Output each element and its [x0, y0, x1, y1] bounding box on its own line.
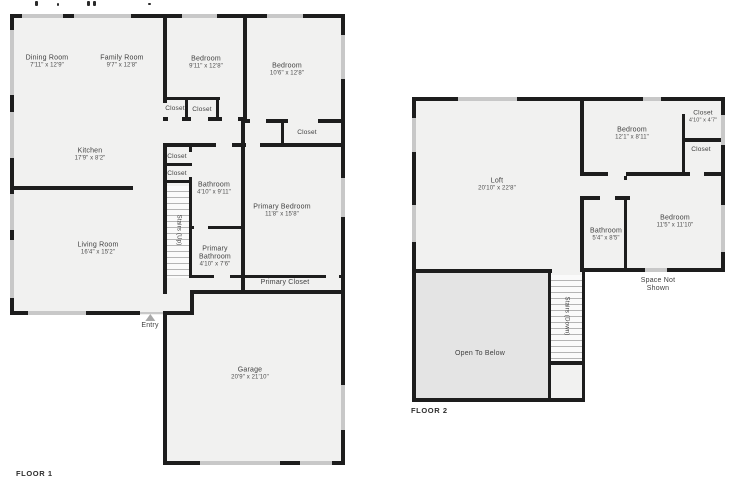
room-label-family-room: Family Room 9'7" x 12'8" [100, 55, 143, 70]
wall [548, 273, 551, 402]
door-opening [608, 172, 626, 176]
room-label-closet: Closet [167, 153, 187, 161]
door-opening [246, 143, 260, 147]
window [74, 14, 131, 18]
wall [190, 290, 194, 315]
wall [163, 14, 167, 103]
window [22, 14, 63, 18]
window [341, 35, 345, 79]
door-opening [194, 226, 208, 229]
wall [243, 14, 247, 121]
room-label-bathroom: Bathroom 4'10" x 9'11" [197, 182, 231, 197]
room-label-loft: Loft 20'10" x 22'8" [478, 178, 516, 193]
wall [580, 97, 584, 172]
window [10, 240, 14, 298]
wall [10, 186, 133, 190]
wall [582, 272, 585, 402]
room-label-closet-top: Closet 4'10" x 4'7" [689, 110, 717, 125]
window [10, 30, 14, 95]
wall [163, 163, 192, 166]
door-opening [326, 275, 339, 278]
door-opening [288, 119, 318, 123]
open-area-fill [414, 271, 548, 400]
room-label-kitchen: Kitchen 17'9" x 8'2" [75, 148, 106, 163]
door-opening [189, 152, 192, 163]
space-not-shown-label: Space Not Shown [636, 277, 680, 293]
open-to-below-label: Open To Below [455, 350, 505, 358]
floor2-label: FLOOR 2 [411, 406, 448, 415]
room-label-bedroom-left: Bedroom 9'11" x 12'8" [189, 56, 223, 71]
window [10, 112, 14, 158]
window [28, 311, 86, 315]
floor1-label: FLOOR 1 [16, 469, 53, 478]
room-label-closet: Closet [192, 106, 212, 114]
door-opening [222, 117, 238, 121]
entry-arrow-icon [145, 314, 155, 321]
window [721, 205, 725, 252]
wall [281, 122, 284, 143]
window [341, 385, 345, 430]
window [643, 97, 661, 101]
wall [551, 361, 582, 365]
window [721, 115, 725, 145]
room-label-closet: Closet [297, 129, 317, 137]
room-label-primary-bedroom: Primary Bedroom 11'8" x 15'8" [253, 204, 310, 219]
wall [163, 97, 220, 100]
wall [163, 180, 192, 183]
window [267, 14, 303, 18]
room-label-living-room: Living Room 16'4" x 15'2" [77, 242, 118, 257]
wall [412, 398, 585, 402]
wall [682, 142, 685, 172]
room-label-dining-room: Dining Room 7'11" x 12'9" [26, 55, 69, 70]
wall [163, 311, 167, 465]
door-opening [214, 275, 230, 278]
floor-plan: Dining Room 7'11" x 12'9" Family Room 9'… [0, 0, 750, 492]
door-opening [690, 172, 704, 176]
wall [189, 275, 345, 278]
window [458, 97, 517, 101]
window [10, 194, 14, 230]
wall [241, 119, 245, 294]
room-label-garage: Garage 20'9" x 21'10" [231, 367, 269, 382]
door-opening [168, 117, 182, 121]
wall [412, 269, 552, 273]
window [645, 268, 667, 272]
room-label-bedroom-top: Bedroom 12'1" x 8'11" [615, 127, 649, 142]
door-opening [250, 119, 266, 123]
room-label-primary-closet: Primary Closet [261, 279, 310, 287]
window [300, 461, 332, 465]
room-fill [412, 97, 725, 268]
wall [580, 196, 584, 272]
room-label-closet: Closet [165, 105, 185, 113]
room-label-closet-side: Closet [691, 146, 711, 154]
door-opening [191, 117, 208, 121]
room-label-primary-bathroom: Primary Bathroom 4'10" x 7'6" [196, 246, 234, 269]
wall [163, 143, 245, 147]
room-label-bedroom-right: Bedroom 10'6" x 12'8" [270, 63, 304, 78]
room-label-bathroom2: Bathroom 5'4" x 8'5" [590, 228, 622, 243]
wall [190, 290, 345, 294]
window [182, 14, 217, 18]
entry-marker: Entry [141, 314, 158, 330]
door-opening [600, 196, 615, 200]
stairs-down-label: Stairs (Down) [563, 297, 570, 336]
wall [624, 196, 627, 268]
room-label-closet: Closet [167, 170, 187, 178]
window [200, 461, 280, 465]
window [412, 118, 416, 152]
window [412, 205, 416, 242]
wall [682, 114, 685, 140]
wall [682, 138, 725, 142]
stairs-up-label: Stairs (Up) [175, 215, 182, 246]
room-label-bedroom-side: Bedroom 11'5" x 11'10" [657, 215, 694, 230]
door-opening [216, 143, 232, 147]
door-opening [189, 166, 192, 177]
window [341, 178, 345, 217]
